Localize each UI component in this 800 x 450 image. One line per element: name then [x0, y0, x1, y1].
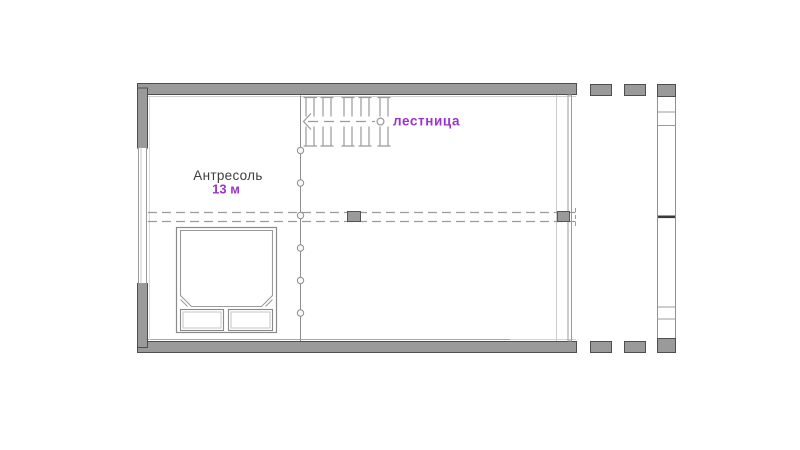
railing-baluster: [297, 212, 303, 218]
railing-baluster: [297, 310, 303, 316]
railing-baluster: [297, 245, 303, 251]
left-wall-upper: [138, 88, 148, 148]
bed-pillow-right: [229, 310, 273, 331]
floor-plan: Антресоль 13 м лестница: [0, 0, 800, 450]
wall-segment-bottom-2: [625, 342, 646, 353]
railing-baluster: [297, 147, 303, 153]
bed-pillow-left: [181, 310, 224, 331]
left-window: [139, 148, 147, 284]
wall-segment-top-1: [591, 85, 612, 96]
right-window-mid-band: [658, 216, 675, 219]
wall-segment-top-2: [625, 85, 646, 96]
wall-segment-bottom-1: [591, 342, 612, 353]
column-right: [558, 212, 570, 222]
bottom-wall: [138, 342, 577, 353]
stair-treads-lower: [306, 127, 388, 146]
right-window-pier-top: [658, 85, 676, 97]
right-window-frame: [658, 85, 676, 353]
floor-plan-canvas: Антресоль 13 м лестница: [0, 0, 800, 450]
stair-start-circle: [377, 118, 384, 125]
left-wall-lower: [138, 284, 148, 348]
top-wall: [138, 84, 577, 95]
bed: [177, 228, 277, 333]
stair-treads-upper: [306, 98, 388, 117]
railing-baluster: [297, 277, 303, 283]
column-mid: [348, 212, 361, 222]
right-window-wall: [658, 85, 676, 353]
right-window-pier-bottom: [658, 339, 676, 353]
stairs-label: лестница: [393, 114, 460, 129]
bed-blanket: [181, 231, 273, 307]
railing-baluster: [297, 180, 303, 186]
room-area-label: 13 м: [212, 182, 240, 197]
staircase: [304, 98, 391, 147]
